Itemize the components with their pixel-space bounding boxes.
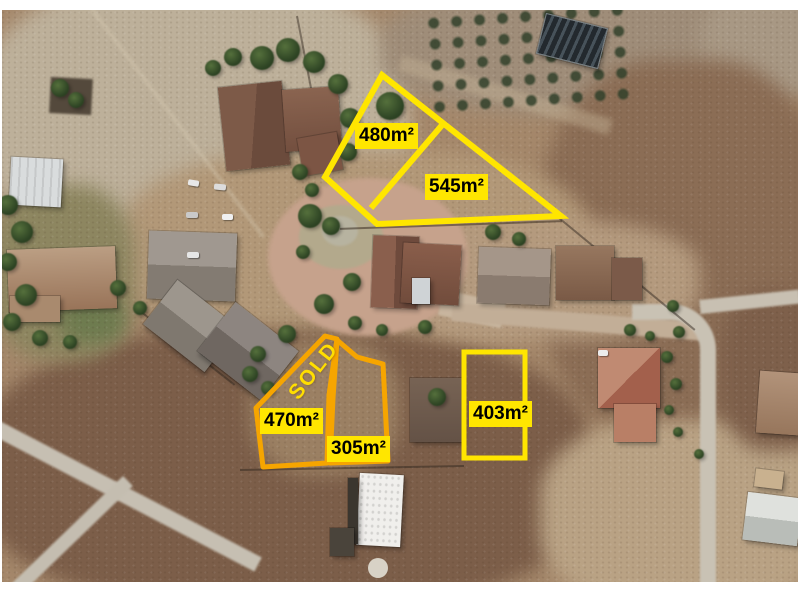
screenshot-frame: 480m² 545m² 470m² 305m² 403m² SOLD <box>0 0 800 600</box>
plot-480-label: 480m² <box>355 123 418 149</box>
plot-outlines <box>2 10 798 582</box>
terrain-layer: 480m² 545m² 470m² 305m² 403m² SOLD <box>2 10 798 582</box>
plot-305-label: 305m² <box>327 436 390 462</box>
plot-403-label: 403m² <box>469 401 532 427</box>
plot-480-545-outline <box>325 75 561 224</box>
satellite-photo: 480m² 545m² 470m² 305m² 403m² SOLD <box>2 10 798 582</box>
plot-545-label: 545m² <box>425 174 488 200</box>
plot-470-label: 470m² <box>260 408 323 434</box>
